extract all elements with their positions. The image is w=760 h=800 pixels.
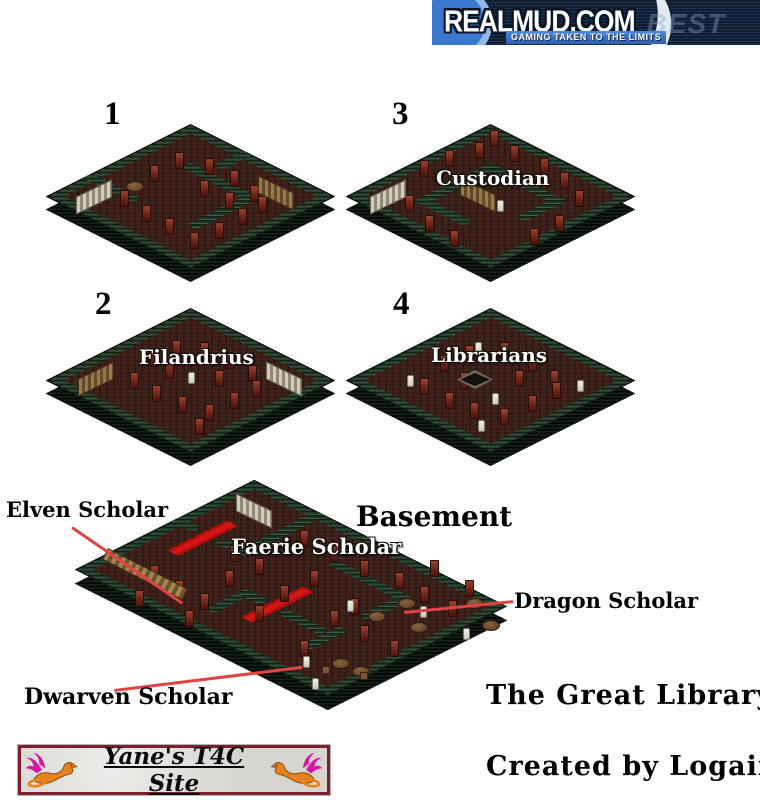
bookshelf-pillar — [420, 586, 429, 603]
round-table — [368, 611, 386, 622]
page: TS BEST REALMUD.COM GAMING TAKEN TO THE … — [0, 0, 760, 800]
dragon-scholar-label: Dragon Scholar — [514, 588, 698, 613]
npc-figure — [188, 372, 195, 384]
bookshelf-pillar — [528, 395, 537, 412]
credit-text: Created by Logain — [486, 751, 760, 782]
bookshelf-pillar — [135, 590, 144, 607]
npc-figure — [497, 200, 504, 212]
bookshelf-pillar — [360, 625, 369, 642]
bookshelf-pillar — [552, 382, 561, 399]
round-table — [410, 622, 428, 633]
banner-tagline: GAMING TAKEN TO THE LIMITS — [506, 31, 666, 44]
bookshelf-pillar — [195, 418, 204, 435]
chair — [322, 666, 330, 674]
dragon-icon — [269, 751, 323, 789]
npc-figure — [463, 628, 470, 640]
page-title: The Great Library — [486, 680, 760, 711]
faerie-scholar-label: Faerie Scholar — [231, 534, 401, 559]
bookshelf-pillar — [205, 158, 214, 175]
round-table — [126, 181, 144, 192]
bookshelf-pillar — [425, 215, 434, 232]
bookshelf-pillar — [142, 205, 151, 222]
map-2-number: 2 — [95, 286, 112, 323]
bookshelf-pillar — [470, 402, 479, 419]
bookshelf-pillar — [530, 228, 539, 245]
bookshelf-pillar — [510, 145, 519, 162]
bookshelf-pillar — [255, 558, 264, 575]
bookshelf-pillar — [395, 572, 404, 589]
custodian-label: Custodian — [436, 166, 549, 190]
bookshelf-pillar — [200, 180, 209, 197]
bookshelf-pillar — [258, 196, 267, 213]
bookshelf-pillar — [175, 152, 184, 169]
bookshelf-pillar — [500, 408, 509, 425]
bookshelf-pillar — [310, 570, 319, 587]
bookshelf-pillar — [330, 610, 339, 627]
map-3-number: 3 — [392, 96, 409, 133]
bookshelf-pillar — [225, 570, 234, 587]
dragon-icon — [25, 751, 79, 789]
bookshelf-pillar — [465, 580, 474, 597]
bookshelf-pillar — [200, 593, 209, 610]
bookshelf-pillar — [360, 560, 369, 577]
chair — [360, 672, 368, 680]
bookshelf-pillar — [152, 385, 161, 402]
npc-figure — [478, 420, 485, 432]
bookshelf-pillar — [430, 560, 439, 577]
bookshelf-pillar — [190, 232, 199, 249]
dwarven-scholar-label: Dwarven Scholar — [24, 684, 232, 710]
bookshelf-pillar — [280, 585, 289, 602]
bookshelf-pillar — [575, 190, 584, 207]
map-4-number: 4 — [393, 286, 410, 323]
realmud-banner[interactable]: TS BEST REALMUD.COM GAMING TAKEN TO THE … — [432, 0, 760, 45]
basement-title: Basement — [356, 500, 512, 533]
site-banner-text: Yane's T4C Site — [81, 743, 267, 797]
npc-figure — [312, 678, 319, 690]
bookshelf-pillar — [185, 610, 194, 627]
bookshelf-pillar — [225, 192, 234, 209]
elven-scholar-label: Elven Scholar — [6, 497, 168, 522]
bookshelf-pillar — [300, 640, 309, 657]
map-1-number: 1 — [104, 96, 121, 133]
bookshelf-pillar — [178, 396, 187, 413]
bookshelf-pillar — [165, 218, 174, 235]
librarians-label: Librarians — [431, 343, 547, 367]
filandrius-label: Filandrius — [139, 345, 254, 369]
round-table — [398, 598, 416, 609]
bookshelf-pillar — [230, 170, 239, 187]
npc-figure — [347, 600, 354, 612]
bookshelf-pillar — [255, 605, 264, 622]
bookshelf-pillar — [450, 230, 459, 247]
bookshelf-pillar — [515, 370, 524, 387]
bookshelf-pillar — [252, 380, 261, 397]
round-table — [332, 658, 350, 669]
site-banner-link[interactable]: Yane's T4C Site — [18, 745, 330, 795]
npc-figure — [577, 380, 584, 392]
bookshelf-pillar — [215, 370, 224, 387]
npc-figure — [303, 656, 310, 668]
bookshelf-pillar — [390, 640, 399, 657]
bookshelf-pillar — [560, 172, 569, 189]
bookshelf-pillar — [555, 215, 564, 232]
bookshelf-pillar — [205, 404, 214, 421]
bookshelf-pillar — [230, 392, 239, 409]
bookshelf-pillar — [120, 190, 129, 207]
bookshelf-pillar — [475, 142, 484, 159]
bookshelf-pillar — [420, 378, 429, 395]
bookshelf-pillar — [405, 195, 414, 212]
bookshelf-pillar — [130, 372, 139, 389]
npc-figure — [492, 393, 499, 405]
bookshelf-pillar — [490, 130, 499, 147]
bookshelf-pillar — [150, 165, 159, 182]
round-table — [482, 620, 500, 631]
bookshelf-pillar — [445, 392, 454, 409]
npc-figure — [407, 375, 414, 387]
bookshelf-pillar — [215, 222, 224, 239]
bookshelf-pillar — [420, 160, 429, 177]
bookshelf-pillar — [445, 150, 454, 167]
bookshelf-pillar — [238, 208, 247, 225]
